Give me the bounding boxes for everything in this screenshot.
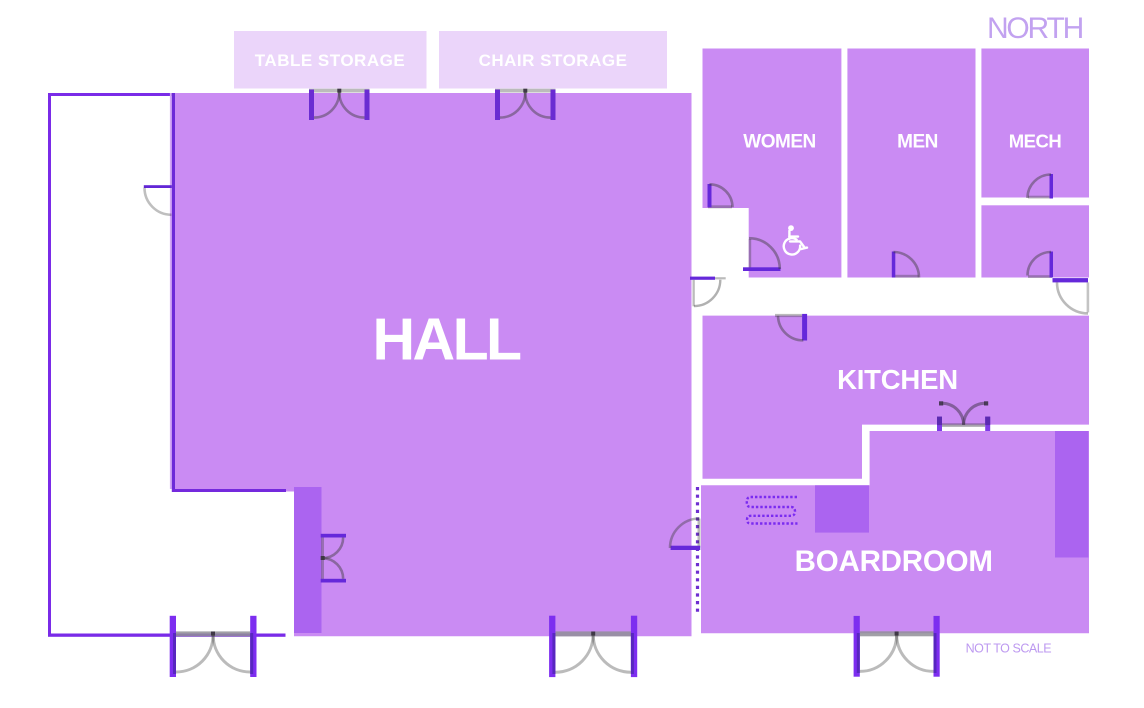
svg-text:MECH: MECH <box>1009 131 1062 152</box>
svg-text:KITCHEN: KITCHEN <box>837 364 958 395</box>
svg-text:TABLE STORAGE: TABLE STORAGE <box>255 51 405 70</box>
svg-text:WOMEN: WOMEN <box>743 132 815 153</box>
svg-text:BOARDROOM: BOARDROOM <box>795 545 993 578</box>
svg-text:HALL: HALL <box>373 307 521 373</box>
svg-text:NOT TO SCALE: NOT TO SCALE <box>966 642 1052 656</box>
svg-text:MEN: MEN <box>897 132 938 153</box>
svg-text:NORTH: NORTH <box>987 12 1083 45</box>
svg-text:CHAIR STORAGE: CHAIR STORAGE <box>479 51 628 70</box>
